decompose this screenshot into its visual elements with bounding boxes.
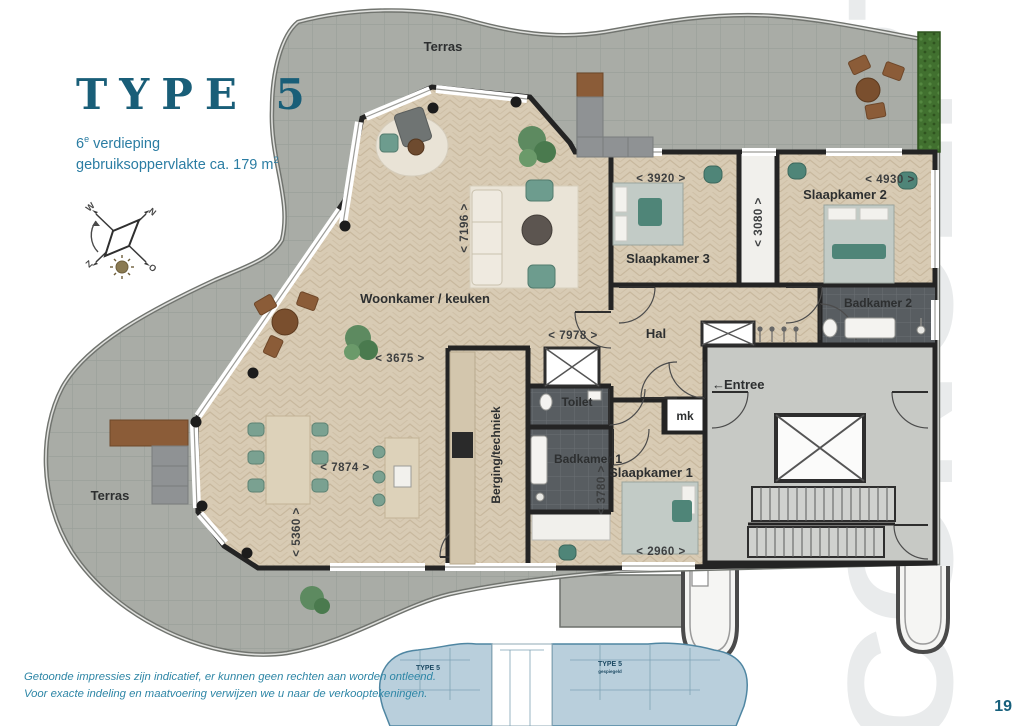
area-text: gebruiksoppervlakte ca. 179 m [76, 157, 273, 173]
wardrobe-slaapkamer1 [532, 514, 610, 540]
dim-slaapkamer3-breed: < 3920 > [636, 173, 685, 185]
dim-slaapkamer2-breed: < 4930 > [865, 174, 914, 186]
dim-woonkamer-breed: < 3675 > [375, 353, 424, 365]
label-toilet: Toilet [561, 395, 592, 409]
keyplan-right-label: TYPE 5 [598, 661, 622, 668]
bed-slaapkamer1 [622, 482, 698, 554]
staircase [748, 487, 895, 557]
compass-east: O [147, 262, 159, 274]
label-slaapkamer3: Slaapkamer 3 [626, 251, 710, 266]
dim-woonkamer-diep: < 7196 > [459, 203, 471, 252]
dim-hal-breed: < 7978 > [548, 330, 597, 342]
shaft-box-entree [702, 322, 754, 345]
label-slaapkamer2: Slaapkamer 2 [803, 187, 887, 202]
bed-slaapkamer3 [613, 183, 683, 245]
page-number: 19 [994, 698, 1012, 716]
area-sup: 2 [273, 155, 278, 165]
brochure-page: TYPE 5 6e verdieping gebruiksoppervlakte… [0, 0, 1024, 726]
label-slaapkamer1: Slaapkamer 1 [609, 465, 693, 480]
keyplan-right-sublabel: gespiegeld [598, 669, 622, 674]
page-title: TYPE 5 [76, 70, 317, 119]
compass-north: N [147, 206, 158, 218]
label-mk: mk [676, 409, 694, 423]
kitchen-island [373, 438, 419, 518]
kitchen-cabinets [450, 352, 475, 564]
dining-set [248, 416, 328, 504]
disclaimer-line-1: Getoonde impressies zijn indicatief, er … [24, 669, 436, 686]
bed-slaapkamer2 [824, 205, 894, 283]
dim-eethoek-breed: < 7874 > [320, 462, 369, 474]
label-entree: Entree [724, 377, 764, 392]
dim-kastenstrook-diep: < 3080 > [753, 197, 765, 246]
compass-south: Z [84, 258, 95, 269]
area-line: gebruiksoppervlakte ca. 179 m2 [76, 154, 317, 175]
label-woonkamer: Woonkamer / keuken [360, 291, 490, 306]
label-terras-top: Terras [424, 39, 463, 54]
floor-line: 6e verdieping [76, 133, 317, 154]
page-header: TYPE 5 6e verdieping gebruiksoppervlakte… [76, 70, 317, 175]
floor-word: verdieping [89, 136, 160, 152]
dim-badkamer1-diep: < 3780 > [596, 465, 608, 514]
green-pouf [559, 545, 576, 560]
sun-icon [110, 255, 134, 279]
disclaimer: Getoonde impressies zijn indicatief, er … [24, 669, 436, 703]
keyplan-core [492, 644, 552, 726]
hedge [918, 32, 940, 152]
disclaimer-line-2: Voor exacte indeling en maatvoering verw… [24, 686, 436, 703]
page-subtitle: 6e verdieping gebruiksoppervlakte ca. 17… [76, 133, 317, 175]
label-berging: Berging/techniek [489, 406, 503, 504]
shaft-box-hal [545, 348, 599, 386]
compass-rose: W N Z O [84, 200, 159, 279]
dim-eethoek-diep: < 5360 > [291, 507, 303, 556]
dim-slaapkamer1-breed: < 2960 > [636, 546, 685, 558]
sofa-group [470, 180, 578, 288]
label-badkamer2: Badkamer 2 [844, 296, 912, 310]
label-badkamer1: Badkamer 1 [554, 452, 622, 466]
label-terras-left: Terras [91, 488, 130, 503]
floor-number: 6 [76, 136, 84, 152]
elevator [776, 415, 864, 481]
label-hal: Hal [646, 326, 666, 341]
